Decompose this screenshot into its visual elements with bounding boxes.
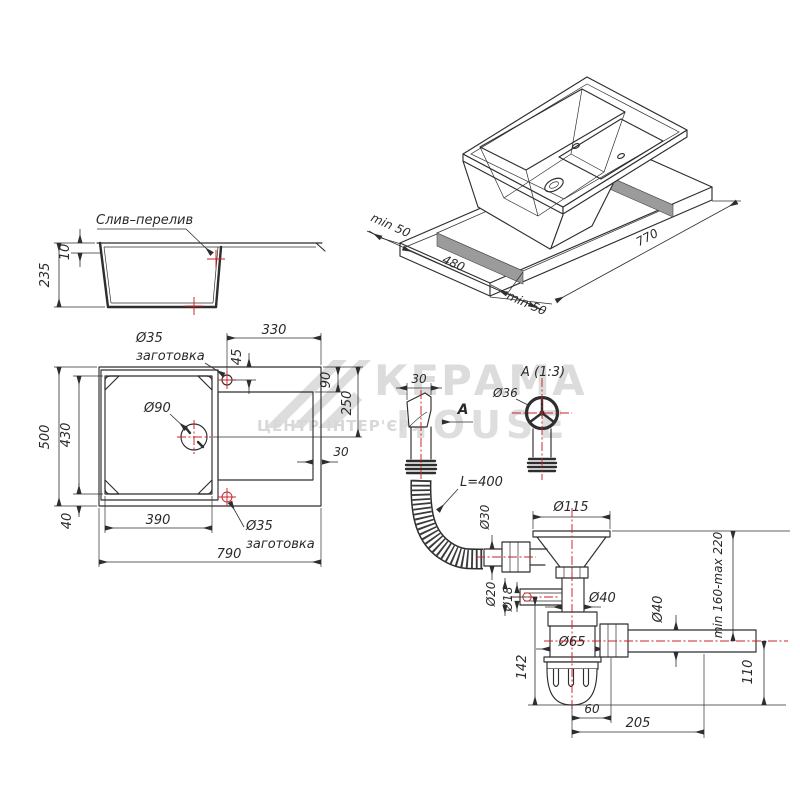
board-top-offset-dim: 90 — [319, 372, 334, 389]
overflow-center-mark — [207, 250, 225, 268]
outlet-diameter-dim: Ø40 — [651, 596, 666, 624]
watermark-brand-line1: КЕРАМА — [374, 356, 587, 405]
sink-technical-drawing-page: КЕРАМА HOUSE ЦЕНТР ІНТЕР'ЄРУ Слив–перели… — [0, 0, 800, 800]
inlet-inner-diameter-dim: Ø18 — [501, 586, 515, 612]
section-arrow-label: A — [457, 402, 469, 418]
tap-hole-top-diameter-label: Ø35 — [135, 331, 163, 346]
watermark-subtitle: ЦЕНТР ІНТЕР'ЄРУ — [257, 417, 423, 435]
outlet-height-dim: 110 — [741, 660, 756, 685]
rim-thickness-dim: 10 — [58, 244, 73, 261]
drain-center-offset-dim: 250 — [340, 391, 355, 416]
trap-offset-dim: 60 — [584, 702, 600, 716]
tap-hole-bottom-note-label: заготовка — [246, 537, 315, 552]
top-view: Ø90 Ø35 заготовка Ø35 заготовка 330 45 9… — [38, 323, 363, 567]
body-diameter-dim: Ø65 — [558, 635, 586, 650]
drain-diameter-label: Ø90 — [143, 401, 171, 416]
height-range-dim: min 160-max 220 — [711, 531, 725, 638]
section-depth-dim: 235 — [38, 263, 53, 288]
bowl-rim-outline — [101, 370, 218, 500]
bowl-inner-outline — [105, 376, 212, 494]
section-view: Слив–перелив 235 10 — [38, 213, 325, 315]
technical-drawing: КЕРАМА HOUSE ЦЕНТР ІНТЕР'ЄРУ Слив–перели… — [0, 0, 800, 800]
strainer-diameter-dim: Ø115 — [552, 500, 588, 515]
tap-hole-top-note-label: заготовка — [136, 349, 205, 364]
bowl-bottom-offset-dim: 40 — [60, 513, 75, 530]
bowl-corner-marks — [105, 376, 212, 494]
tap-hole-bottom-center — [218, 488, 236, 506]
hose-length-label: L=400 — [460, 475, 503, 490]
bowl-section-outline — [100, 243, 221, 307]
board-width-dim: 330 — [262, 323, 287, 338]
trap-body — [544, 508, 601, 712]
detail-title: A (1:3) — [520, 365, 565, 380]
margin-left-dim: min 50 — [369, 210, 413, 240]
inlet-outer-diameter-dim: Ø20 — [484, 581, 498, 607]
margin-bottom-dim: min 50 — [505, 288, 549, 318]
outlet-length-dim: 205 — [626, 716, 651, 731]
overall-depth-dim: 500 — [38, 425, 53, 450]
overflow-width-dim: 30 — [411, 372, 427, 386]
bowl-depth-dim: 430 — [59, 423, 74, 448]
tailpipe-diameter-dim: Ø40 — [588, 591, 616, 606]
overflow-cap-diameter-label: Ø36 — [492, 386, 518, 400]
overflow-callout-label: Слив–перелив — [96, 213, 193, 228]
board-right-gap-dim: 30 — [333, 445, 349, 459]
drain-center-mark — [185, 297, 203, 315]
body-height-dim: 142 — [515, 655, 530, 680]
isometric-view: min 50 480 min 50 770 — [367, 77, 741, 318]
hose-connection-diameter-dim: Ø30 — [478, 504, 492, 530]
bowl-width-dim: 390 — [146, 513, 171, 528]
tap-hole-bottom-diameter-label: Ø35 — [245, 519, 273, 534]
hose-fitting — [476, 542, 547, 572]
hole-offset-dim: 45 — [230, 349, 245, 366]
overall-width-dim: 790 — [217, 547, 242, 562]
